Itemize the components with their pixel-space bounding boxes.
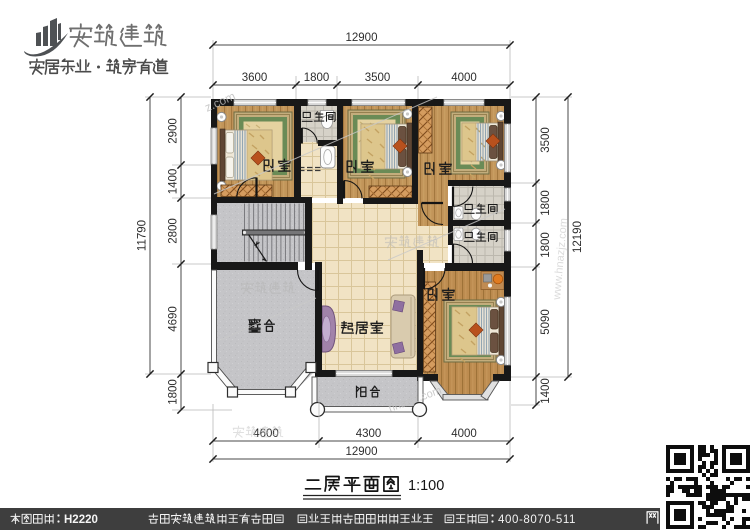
svg-text:12190: 12190 xyxy=(572,221,584,253)
svg-text:400-8070-511: 400-8070-511 xyxy=(498,514,576,526)
svg-text:4000: 4000 xyxy=(451,428,477,440)
svg-text:5090: 5090 xyxy=(540,309,552,335)
svg-text:3500: 3500 xyxy=(540,127,552,153)
svg-text:2900: 2900 xyxy=(168,118,180,144)
svg-text:3500: 3500 xyxy=(365,72,391,84)
svg-text:3600: 3600 xyxy=(242,72,268,84)
svg-text:4000: 4000 xyxy=(451,72,477,84)
svg-text:1800: 1800 xyxy=(540,190,552,216)
svg-text:1400: 1400 xyxy=(168,169,180,195)
svg-text:1800: 1800 xyxy=(304,72,330,84)
svg-text:2800: 2800 xyxy=(168,218,180,244)
svg-text:4690: 4690 xyxy=(168,306,180,332)
svg-text:1800: 1800 xyxy=(540,232,552,258)
svg-text:12900: 12900 xyxy=(346,32,378,44)
svg-text:1800: 1800 xyxy=(168,379,180,405)
svg-text:11790: 11790 xyxy=(137,220,149,251)
svg-text:4300: 4300 xyxy=(356,428,382,440)
svg-text:1400: 1400 xyxy=(540,378,552,404)
svg-text:1:100: 1:100 xyxy=(408,478,444,494)
svg-text:12900: 12900 xyxy=(346,446,378,458)
svg-text:H2220: H2220 xyxy=(64,514,98,526)
